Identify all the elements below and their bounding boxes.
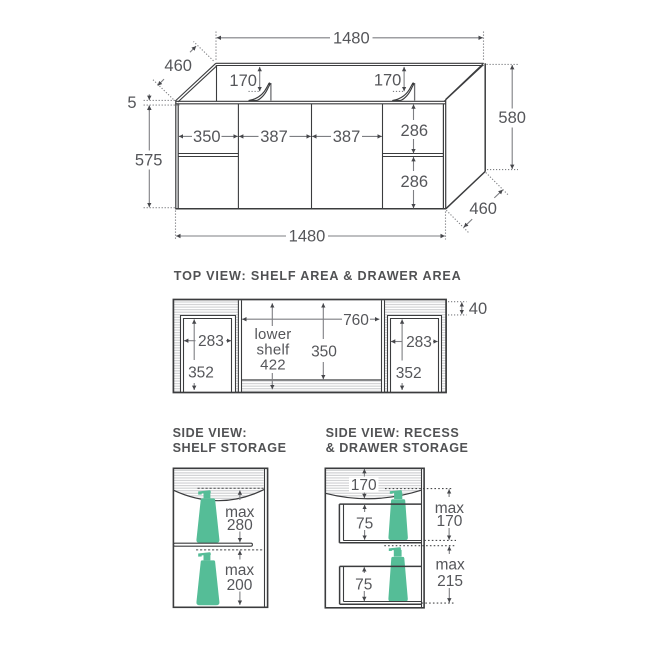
svg-text:max: max: [435, 556, 465, 573]
svg-text:575: 575: [135, 151, 163, 169]
svg-text:170: 170: [351, 477, 377, 494]
svg-text:SHELF STORAGE: SHELF STORAGE: [173, 441, 287, 455]
svg-text:283: 283: [406, 334, 432, 351]
svg-text:SIDE VIEW:: SIDE VIEW:: [173, 426, 248, 440]
svg-text:580: 580: [498, 109, 526, 127]
svg-text:422: 422: [260, 357, 286, 374]
svg-text:170: 170: [229, 72, 257, 90]
svg-text:SIDE VIEW: RECESS: SIDE VIEW: RECESS: [326, 426, 460, 440]
svg-text:1480: 1480: [289, 227, 326, 245]
svg-text:215: 215: [437, 573, 463, 590]
svg-text:387: 387: [260, 128, 288, 146]
svg-text:352: 352: [188, 365, 214, 382]
svg-text:& DRAWER STORAGE: & DRAWER STORAGE: [326, 441, 469, 455]
svg-text:460: 460: [469, 200, 497, 218]
svg-text:1480: 1480: [333, 29, 370, 47]
svg-text:200: 200: [227, 577, 253, 594]
svg-text:40: 40: [469, 300, 487, 318]
svg-text:170: 170: [436, 513, 462, 530]
svg-text:460: 460: [164, 57, 192, 75]
svg-text:5: 5: [127, 94, 136, 112]
svg-text:352: 352: [396, 365, 422, 382]
svg-text:760: 760: [343, 312, 369, 329]
svg-text:75: 75: [356, 515, 373, 532]
svg-text:387: 387: [333, 128, 361, 146]
svg-text:170: 170: [374, 72, 402, 90]
svg-text:286: 286: [401, 173, 429, 191]
svg-text:283: 283: [198, 333, 224, 350]
svg-text:280: 280: [227, 517, 253, 534]
svg-text:75: 75: [355, 576, 372, 593]
svg-text:286: 286: [401, 122, 429, 140]
svg-text:TOP VIEW: SHELF AREA & DRAWER: TOP VIEW: SHELF AREA & DRAWER AREA: [174, 269, 462, 283]
svg-text:350: 350: [311, 343, 337, 360]
svg-text:350: 350: [193, 128, 221, 146]
